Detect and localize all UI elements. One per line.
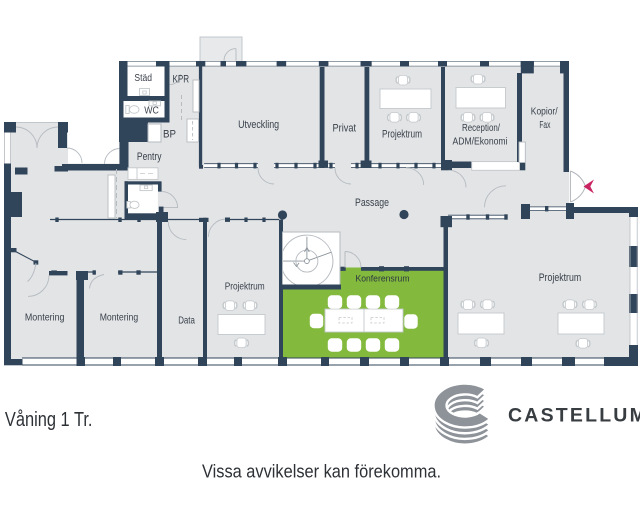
svg-text:WC: WC: [144, 106, 159, 117]
svg-text:Utveckling: Utveckling: [238, 119, 279, 131]
svg-text:Projektrum: Projektrum: [539, 272, 582, 284]
svg-text:Pentry: Pentry: [137, 151, 162, 163]
svg-text:BP: BP: [163, 129, 176, 141]
svg-text:Montering: Montering: [100, 313, 139, 324]
svg-text:Projektrum: Projektrum: [382, 129, 422, 141]
svg-text:Reception/: Reception/: [462, 123, 500, 134]
svg-text:Projektrum: Projektrum: [225, 282, 265, 293]
svg-text:CASTELLUM: CASTELLUM: [508, 405, 640, 427]
svg-text:Våning 1 Tr.: Våning 1 Tr.: [5, 409, 93, 431]
svg-text:Passage: Passage: [355, 197, 389, 209]
svg-text:Privat: Privat: [333, 123, 357, 135]
svg-text:Vissa avvikelser kan förekomma: Vissa avvikelser kan förekomma.: [202, 461, 441, 482]
svg-text:Fax: Fax: [539, 120, 550, 131]
svg-text:Montering: Montering: [25, 313, 65, 324]
svg-text:Kopior/: Kopior/: [531, 107, 558, 118]
svg-text:ADM/Ekonomi: ADM/Ekonomi: [453, 137, 508, 148]
svg-text:Data: Data: [178, 316, 195, 327]
svg-text:KPR: KPR: [173, 74, 190, 86]
svg-text:Konferensrum: Konferensrum: [356, 274, 410, 285]
svg-text:Städ: Städ: [134, 73, 152, 84]
